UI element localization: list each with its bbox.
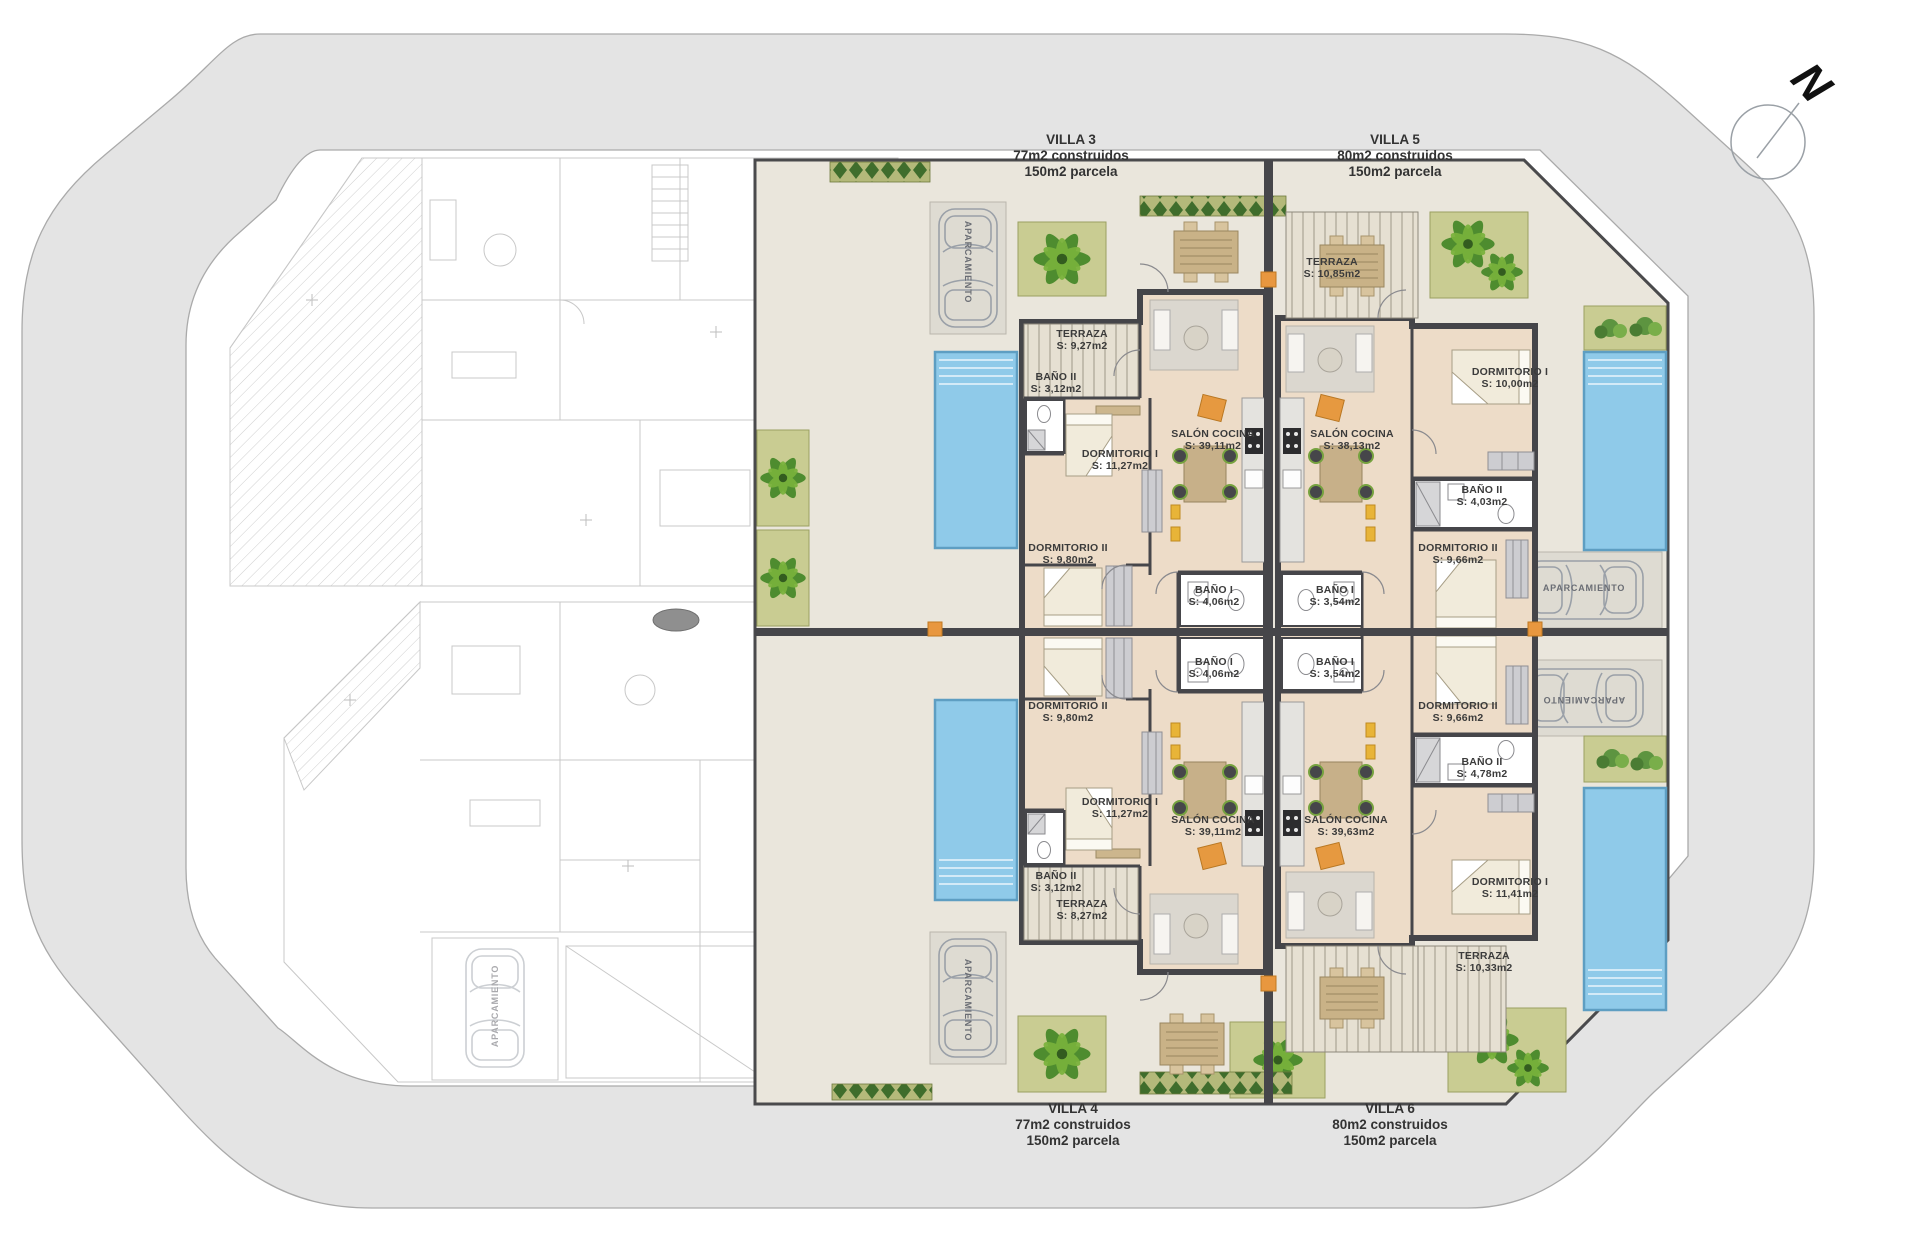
villa3-title: VILLA 3 77m2 construidos 150m2 parcela [1013, 132, 1129, 180]
villa6-banyo2-label: BAÑO II S: 4,78m2 [1457, 756, 1508, 780]
pool-villa6 [1584, 788, 1666, 1010]
compass-needle [1757, 103, 1799, 158]
room-area: S: 8,27m2 [1056, 910, 1108, 922]
room-area: S: 39,11m2 [1171, 826, 1254, 838]
pool-villa4 [935, 700, 1017, 900]
room-area: S: 39,11m2 [1171, 440, 1254, 452]
room-area: S: 4,06m2 [1189, 596, 1240, 608]
room-name: DORMITORIO II [1418, 700, 1497, 712]
room-name: DORMITORIO I [1082, 448, 1158, 460]
villa5-built-area: 80m2 construidos [1337, 148, 1453, 164]
room-name: DORMITORIO I [1472, 366, 1548, 378]
room-area: S: 3,54m2 [1310, 668, 1361, 680]
room-area: S: 10,85m2 [1304, 268, 1361, 280]
pool-villa3 [935, 352, 1017, 548]
room-name: TERRAZA [1456, 950, 1513, 962]
villa5-banyo2-label: BAÑO II S: 4,03m2 [1457, 484, 1508, 508]
room-area: S: 38,13m2 [1310, 440, 1393, 452]
room-area: S: 9,66m2 [1418, 554, 1497, 566]
room-area: S: 10,00m2 [1472, 378, 1548, 390]
room-area: S: 39,63m2 [1304, 826, 1387, 838]
villa6-name: VILLA 6 [1332, 1101, 1448, 1117]
room-name: BAÑO II [1457, 484, 1508, 496]
room-area: S: 9,66m2 [1418, 712, 1497, 724]
room-name: BAÑO II [1031, 870, 1082, 882]
site-plan-page: VILLA 3 77m2 construidos 150m2 parcela V… [0, 0, 1920, 1244]
room-area: S: 11,27m2 [1082, 460, 1158, 472]
villa6-banyo1-label: BAÑO I S: 3,54m2 [1310, 656, 1361, 680]
room-area: S: 11,41m2 [1472, 888, 1548, 900]
room-name: DORMITORIO II [1028, 700, 1107, 712]
villa3-name: VILLA 3 [1013, 132, 1129, 148]
parking-label-villa6: APARCAMIENTO [1543, 695, 1625, 705]
room-name: DORMITORIO I [1472, 876, 1548, 888]
room-name: SALÓN COCINA [1171, 814, 1254, 826]
room-name: BAÑO II [1031, 371, 1082, 383]
villa6-terraza-label: TERRAZA S: 10,33m2 [1456, 950, 1513, 974]
villa4-terraza-label: TERRAZA S: 8,27m2 [1056, 898, 1108, 922]
room-name: SALÓN COCINA [1171, 428, 1254, 440]
villa6-title: VILLA 6 80m2 construidos 150m2 parcela [1332, 1101, 1448, 1149]
villa5-terraza-label: TERRAZA S: 10,85m2 [1304, 256, 1361, 280]
villa3-built-area: 77m2 construidos [1013, 148, 1129, 164]
room-name: SALÓN COCINA [1304, 814, 1387, 826]
parking-label-villa5: APARCAMIENTO [1543, 583, 1625, 593]
villa4-banyo1-label: BAÑO I S: 4,06m2 [1189, 656, 1240, 680]
room-area: S: 10,33m2 [1456, 962, 1513, 974]
villa3-salon-label: SALÓN COCINA S: 39,11m2 [1171, 428, 1254, 452]
villa5-name: VILLA 5 [1337, 132, 1453, 148]
villa5-dormitorio2-label: DORMITORIO II S: 9,66m2 [1418, 542, 1497, 566]
room-area: S: 4,03m2 [1457, 496, 1508, 508]
villa4-name: VILLA 4 [1015, 1101, 1131, 1117]
villa4-dormitorio1-label: DORMITORIO I S: 11,27m2 [1082, 796, 1158, 820]
room-area: S: 9,27m2 [1056, 340, 1108, 352]
compass [1731, 103, 1805, 179]
site-plan-graphic [0, 0, 1920, 1244]
villa4-dormitorio2-label: DORMITORIO II S: 9,80m2 [1028, 700, 1107, 724]
villa3-plot-area: 150m2 parcela [1013, 164, 1129, 180]
parking-label-villa4: APARCAMIENTO [963, 959, 973, 1041]
room-name: TERRAZA [1056, 328, 1108, 340]
villa4-banyo2-label: BAÑO II S: 3,12m2 [1031, 870, 1082, 894]
coloured-parcel [755, 160, 1668, 1104]
parking-label-villa3: APARCAMIENTO [963, 221, 973, 303]
villa6-built-area: 80m2 construidos [1332, 1117, 1448, 1133]
room-name: BAÑO I [1310, 656, 1361, 668]
room-area: S: 3,12m2 [1031, 882, 1082, 894]
room-name: SALÓN COCINA [1310, 428, 1393, 440]
villa5-salon-label: SALÓN COCINA S: 38,13m2 [1310, 428, 1393, 452]
villa6-dormitorio1-label: DORMITORIO I S: 11,41m2 [1472, 876, 1548, 900]
villa4-plot-area: 150m2 parcela [1015, 1133, 1131, 1149]
room-area: S: 3,12m2 [1031, 383, 1082, 395]
room-name: DORMITORIO I [1082, 796, 1158, 808]
room-area: S: 4,78m2 [1457, 768, 1508, 780]
room-area: S: 4,06m2 [1189, 668, 1240, 680]
garden-table-villa3 [1174, 222, 1238, 282]
room-area: S: 9,80m2 [1028, 712, 1107, 724]
pool-villa5 [1584, 352, 1666, 550]
villa5-banyo1-label: BAÑO I S: 3,54m2 [1310, 584, 1361, 608]
room-name: BAÑO II [1457, 756, 1508, 768]
villa5-plot-area: 150m2 parcela [1337, 164, 1453, 180]
villa3-dormitorio2-label: DORMITORIO II S: 9,80m2 [1028, 542, 1107, 566]
room-name: BAÑO I [1189, 656, 1240, 668]
villa5-title: VILLA 5 80m2 construidos 150m2 parcela [1337, 132, 1453, 180]
villa3-banyo1-label: BAÑO I S: 4,06m2 [1189, 584, 1240, 608]
villa3-banyo2-label: BAÑO II S: 3,12m2 [1031, 371, 1082, 395]
garden-table-villa4 [1160, 1014, 1224, 1074]
villa6-plot-area: 150m2 parcela [1332, 1133, 1448, 1149]
villa6-salon-label: SALÓN COCINA S: 39,63m2 [1304, 814, 1387, 838]
room-name: DORMITORIO II [1418, 542, 1497, 554]
room-name: TERRAZA [1304, 256, 1361, 268]
room-name: TERRAZA [1056, 898, 1108, 910]
room-name: BAÑO I [1310, 584, 1361, 596]
villa4-title: VILLA 4 77m2 construidos 150m2 parcela [1015, 1101, 1131, 1149]
room-name: DORMITORIO II [1028, 542, 1107, 554]
room-area: S: 3,54m2 [1310, 596, 1361, 608]
villa5-dormitorio1-label: DORMITORIO I S: 10,00m2 [1472, 366, 1548, 390]
parking-label-ghost-plan: APARCAMIENTO [490, 965, 500, 1047]
villa6-dormitorio2-label: DORMITORIO II S: 9,66m2 [1418, 700, 1497, 724]
villa3-terraza-label: TERRAZA S: 9,27m2 [1056, 328, 1108, 352]
compass-circle [1731, 105, 1805, 179]
villa3-dormitorio1-label: DORMITORIO I S: 11,27m2 [1082, 448, 1158, 472]
room-area: S: 11,27m2 [1082, 808, 1158, 820]
villa4-salon-label: SALÓN COCINA S: 39,11m2 [1171, 814, 1254, 838]
room-name: BAÑO I [1189, 584, 1240, 596]
villa4-built-area: 77m2 construidos [1015, 1117, 1131, 1133]
room-area: S: 9,80m2 [1028, 554, 1107, 566]
